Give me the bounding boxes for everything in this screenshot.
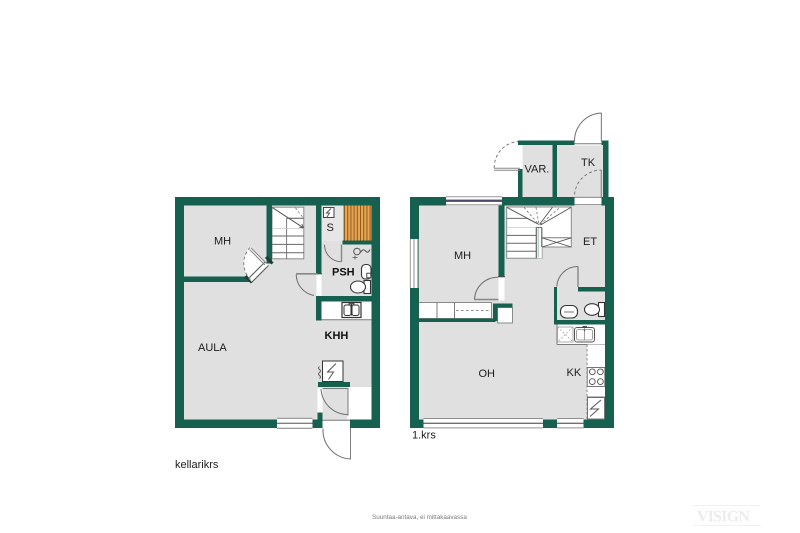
svg-text:KHH: KHH	[325, 330, 349, 342]
svg-text:KK: KK	[567, 367, 582, 379]
svg-text:Suuntaa-antava, ei mittakaavas: Suuntaa-antava, ei mittakaavassa	[372, 514, 467, 521]
svg-text:AULA: AULA	[198, 342, 227, 354]
svg-text:PSH: PSH	[332, 267, 355, 279]
svg-text:ET: ET	[583, 236, 597, 248]
svg-text:1.krs: 1.krs	[412, 430, 436, 442]
svg-text:kellarikrs: kellarikrs	[175, 459, 219, 471]
svg-text:VISIGN: VISIGN	[697, 509, 750, 526]
svg-text:MH: MH	[454, 250, 471, 262]
svg-text:OH: OH	[479, 368, 496, 380]
svg-text:VAR.: VAR.	[525, 164, 550, 176]
svg-text:S: S	[327, 222, 334, 234]
svg-text:TK: TK	[581, 157, 596, 169]
svg-text:MH: MH	[214, 236, 231, 248]
